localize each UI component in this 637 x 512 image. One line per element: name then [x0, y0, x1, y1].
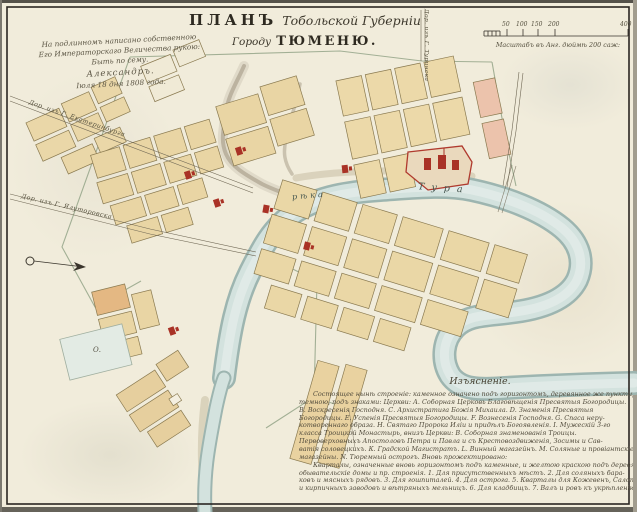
church-icon [213, 197, 225, 208]
legend-line: класса Троицкой Монастырь, внизъ Церкви:… [299, 430, 633, 438]
legend-line: Кварталы, означенные вновь горизонтомъ п… [299, 462, 633, 470]
scale-tick-label: 200 [548, 21, 559, 28]
legend-block: Состоящее нынѣ строеніе: каменное означе… [299, 391, 633, 493]
map-title: ПЛАНЪ Тобольской Губерніи Городу ТЮМЕНЮ. [165, 10, 445, 49]
church-icon [262, 205, 273, 215]
scale-tick-label: 150 [531, 21, 542, 28]
title-city: ТЮМЕНЮ. [276, 34, 378, 49]
city-blocks-south [245, 180, 527, 377]
legend-line: обывательскіе домы и пр. строенія. 1. Дл… [299, 470, 633, 478]
legend-line: магазейны. N. Тюремный острогъ. Вновь пр… [299, 454, 633, 462]
title-province: Тобольской Губерніи [282, 13, 421, 28]
title-gorodu: Городу [232, 36, 271, 48]
road-label-turinsk: Дор. изъ Г. Туринска [423, 9, 429, 81]
map-sheet: На подлинномъ написано собственною Его И… [0, 0, 637, 512]
pond-label: О. [93, 346, 101, 354]
legend-line: темною, подъ знаками: Церкви: А. Соборна… [299, 399, 633, 407]
church-icon [168, 325, 180, 336]
scale-caption: Масштабъ въ Анг. дюймѣ 200 саж: [487, 41, 629, 49]
legend-line: и кирпичныхъ заводовъ и вѣтряныхъ мельни… [299, 485, 633, 493]
legend-heading: Изъясненіе. [380, 376, 580, 387]
legend-line: Богородицы. Е. Успенія Пресвятыя Богород… [299, 415, 633, 423]
title-plan: ПЛАНЪ [189, 11, 277, 29]
legend-line: В. Воскресенія Господня. С. Архистратига… [299, 407, 633, 415]
legend-line: Состоящее нынѣ строеніе: каменное означе… [299, 391, 633, 399]
legend-line: ковъ и мясныхъ рядовъ. 3. Для гошпиталей… [299, 477, 633, 485]
scale-tick-label: 50 [502, 21, 510, 28]
legend-line: ватія соловецкихъ. К. Градской Магистрат… [299, 446, 633, 454]
scale-bar [484, 29, 628, 36]
compass-needle-icon [26, 257, 86, 271]
scale-tick-label: 400 [620, 21, 631, 28]
legend-line: котвореннаго образа. Н. Святаго Пророка … [299, 422, 633, 430]
scale-tick-label: 100 [516, 21, 527, 28]
legend-line: Первоверховныхъ Апостоловъ Петра и Павла… [299, 438, 633, 446]
